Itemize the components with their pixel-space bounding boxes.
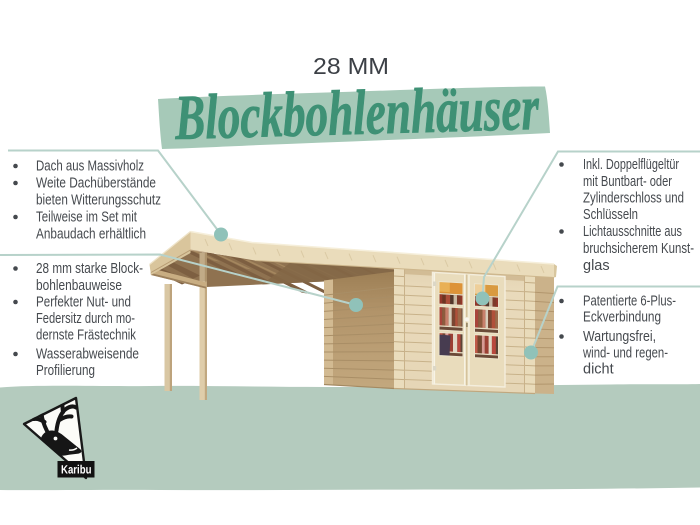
svg-text:Teilweise im Set mit: Teilweise im Set mit <box>36 210 137 226</box>
svg-text:bruchsicherem Kunst-: bruchsicherem Kunst- <box>583 241 694 257</box>
svg-text:bohlenbauweise: bohlenbauweise <box>36 278 122 294</box>
svg-text:Zylinderschloss und: Zylinderschloss und <box>583 191 684 207</box>
svg-text:Anbaudach erhältlich: Anbaudach erhältlich <box>36 227 146 243</box>
svg-text:28 MM: 28 MM <box>313 53 389 79</box>
svg-text:mit Buntbart- oder: mit Buntbart- oder <box>583 174 672 190</box>
svg-text:glas: glas <box>583 258 610 274</box>
svg-text:Eckverbindung: Eckverbindung <box>583 310 661 326</box>
svg-text:Weite Dachüberstände: Weite Dachüberstände <box>36 176 156 192</box>
svg-text:Karibu: Karibu <box>61 463 92 477</box>
svg-text:wind- und regen-: wind- und regen- <box>582 346 668 362</box>
svg-text:Schlüsseln: Schlüsseln <box>583 207 638 223</box>
svg-text:Wartungsfrei,: Wartungsfrei, <box>583 329 656 345</box>
svg-text:Inkl. Doppelflügeltür: Inkl. Doppelflügeltür <box>583 157 679 173</box>
svg-text:28 mm starke Block-: 28 mm starke Block- <box>36 261 143 277</box>
svg-text:Federsitz durch mo-: Federsitz durch mo- <box>36 311 135 327</box>
svg-text:dernste Frästechnik: dernste Frästechnik <box>36 328 137 344</box>
svg-text:Wasserabweisende: Wasserabweisende <box>36 347 139 363</box>
svg-text:Perfekter Nut- und: Perfekter Nut- und <box>36 295 131 311</box>
svg-text:Lichtausschnitte aus: Lichtausschnitte aus <box>583 224 682 240</box>
svg-text:Dach aus Massivholz: Dach aus Massivholz <box>36 159 144 175</box>
svg-text:Blockbohlenhäuser: Blockbohlenhäuser <box>173 72 540 153</box>
svg-text:bieten Witterungsschutz: bieten Witterungsschutz <box>36 193 161 209</box>
svg-text:Profilierung: Profilierung <box>36 363 95 379</box>
svg-text:dicht: dicht <box>583 362 614 378</box>
svg-text:Patentierte 6-Plus-: Patentierte 6-Plus- <box>583 294 676 310</box>
